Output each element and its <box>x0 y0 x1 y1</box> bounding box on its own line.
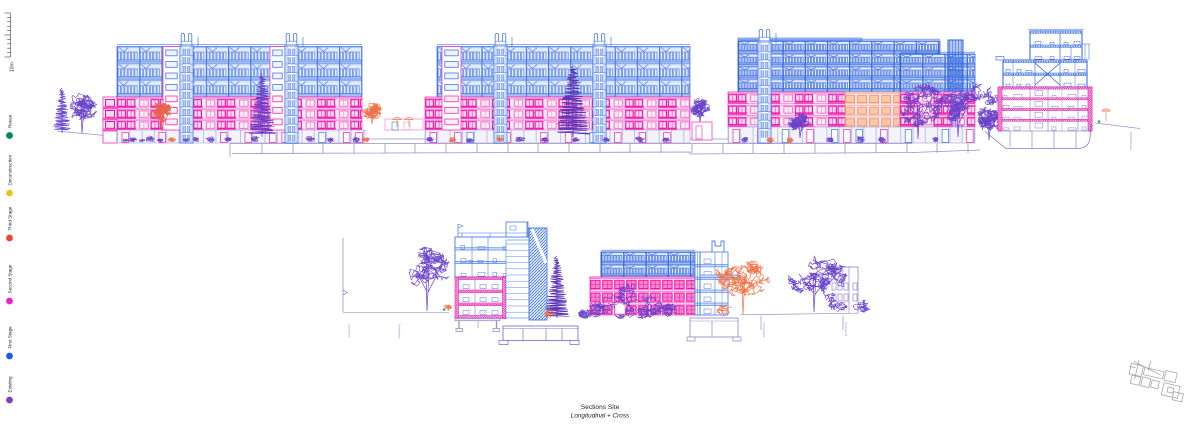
svg-text:Reuse: Reuse <box>8 114 13 128</box>
svg-text:Bodenwiese: Bodenwiese <box>398 324 402 339</box>
svg-text:Sections Site: Sections Site <box>581 404 620 411</box>
svg-text:Existing: Existing <box>8 376 13 393</box>
svg-text:Longitudinal + Cross: Longitudinal + Cross <box>571 413 630 420</box>
svg-text:Third Stage: Third Stage <box>8 206 13 230</box>
svg-text:First Stage: First Stage <box>8 326 13 349</box>
svg-text:Grunewaldstr: Grunewaldstr <box>762 322 766 338</box>
svg-text:Second Stage: Second Stage <box>8 264 13 293</box>
svg-text:Rudower Str: Rudower Str <box>844 322 848 337</box>
svg-text:10m: 10m <box>10 62 16 72</box>
svg-text:Deconstruction: Deconstruction <box>8 154 13 185</box>
svg-text:Lentzeallee: Lentzeallee <box>348 324 352 338</box>
svg-text:Friedhofstrasse: Friedhofstrasse <box>1129 132 1133 150</box>
